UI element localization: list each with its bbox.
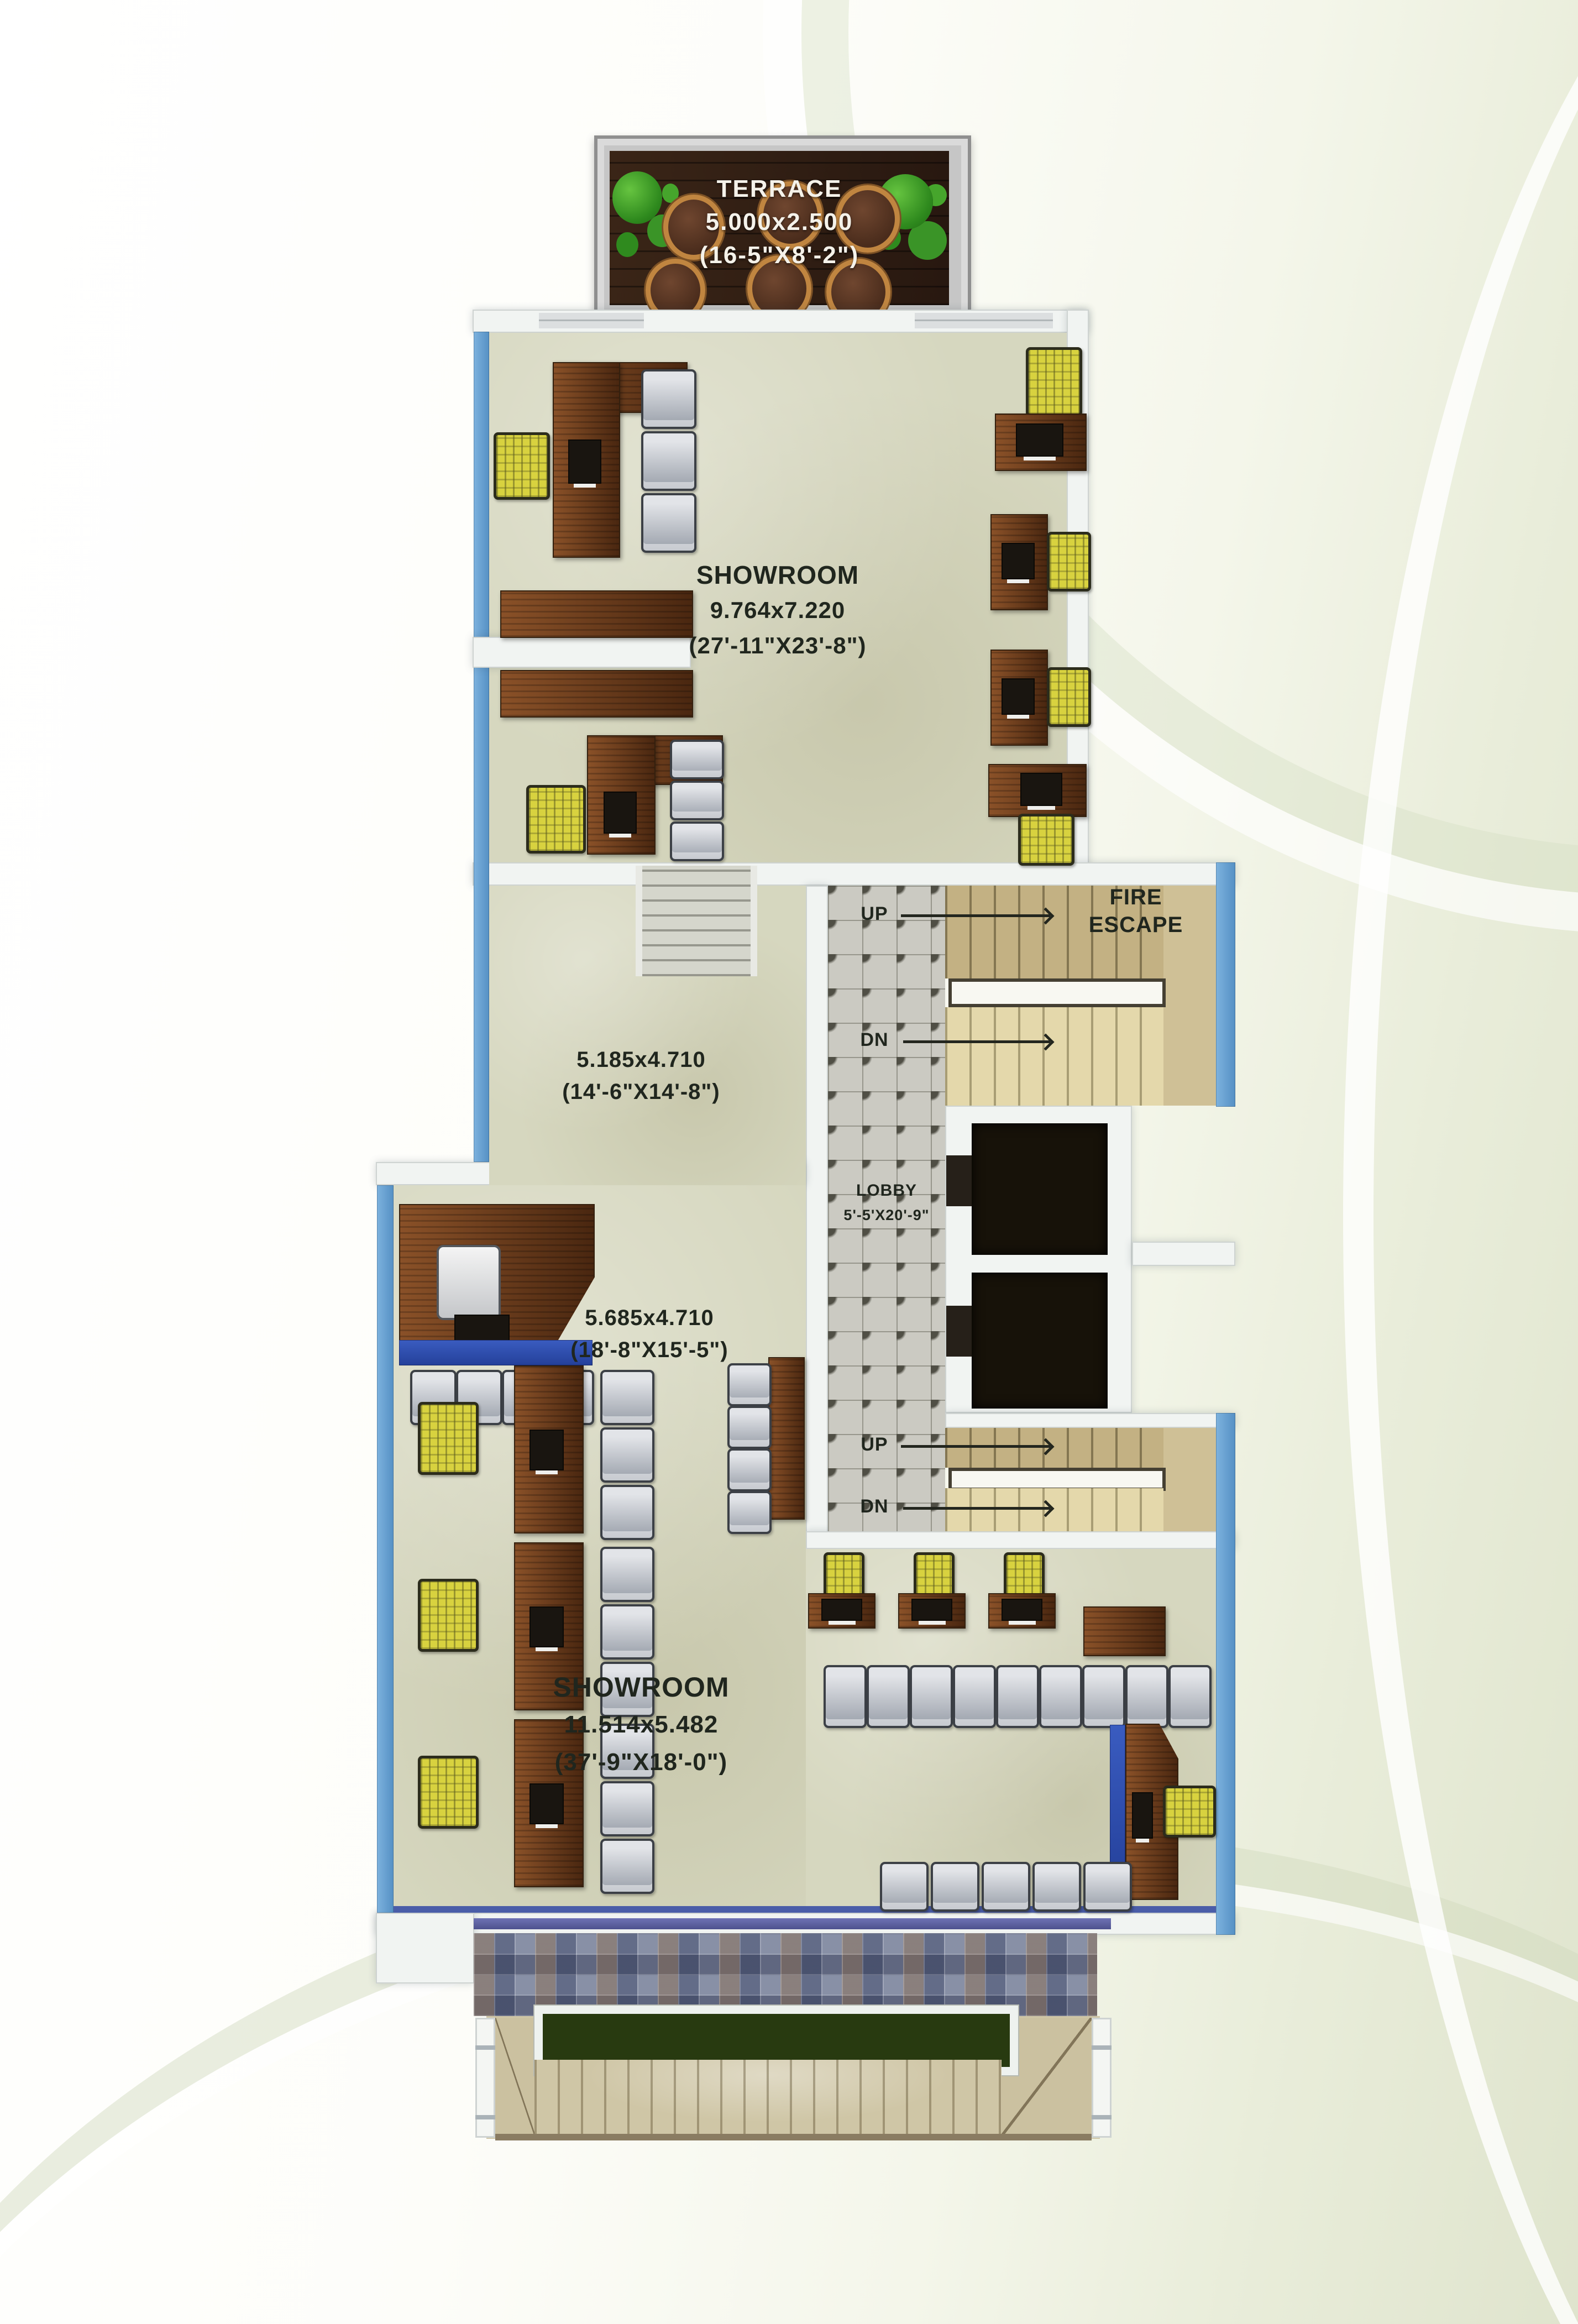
room-reception-dim-imperial: (18'-8"X15'-5") [484,1334,815,1366]
showroom-lower-label: SHOWROOM 11.514x5.482 (37'-9"X18'-0") [475,1668,807,1781]
showroom-upper-name: SHOWROOM [612,557,943,593]
room-mid-dim-metric: 5.185x4.710 [475,1044,807,1076]
down-label-lower-stair: DN [852,1496,897,1517]
fire-escape-word2: ESCAPE [1053,911,1219,939]
room-reception-label: 5.685x4.710 (18'-8"X15'-5") [484,1302,815,1366]
showroom-upper-dim-imperial: (27'-11"X23'-8") [612,628,943,663]
up-label-lower-stair: UP [852,1434,897,1456]
up-arrow-lower-stair [901,1445,1050,1448]
floor-plan: TERRACE 5.000x2.500 (16-5"X8'-2") [0,0,1578,2324]
lobby-dim: 5'-5'X20'-9" [825,1203,948,1227]
showroom-upper-label: SHOWROOM 9.764x7.220 (27'-11"X23'-8") [612,557,943,663]
fire-escape-word1: FIRE [1053,883,1219,911]
down-arrow-lower-stair [903,1507,1050,1510]
lobby-name: LOBBY [825,1179,948,1203]
up-label-fire-escape: UP [852,903,897,925]
lobby-label: LOBBY 5'-5'X20'-9" [825,1179,948,1227]
up-arrow-fire-escape [901,914,1050,917]
showroom-upper-dim-metric: 9.764x7.220 [612,593,943,628]
down-label-fire-escape: DN [852,1029,897,1051]
room-reception-dim-metric: 5.685x4.710 [484,1302,815,1334]
showroom-lower-dim-imperial: (37'-9"X18'-0") [475,1744,807,1781]
showroom-lower-name: SHOWROOM [475,1668,807,1706]
showroom-lower-dim-metric: 11.514x5.482 [475,1706,807,1744]
annotations: SHOWROOM 9.764x7.220 (27'-11"X23'-8") 5.… [0,0,1578,2324]
room-mid-label: 5.185x4.710 (14'-6"X14'-8") [475,1044,807,1108]
fire-escape-label: FIRE ESCAPE [1053,883,1219,939]
down-arrow-fire-escape [903,1040,1050,1043]
room-mid-dim-imperial: (14'-6"X14'-8") [475,1076,807,1108]
